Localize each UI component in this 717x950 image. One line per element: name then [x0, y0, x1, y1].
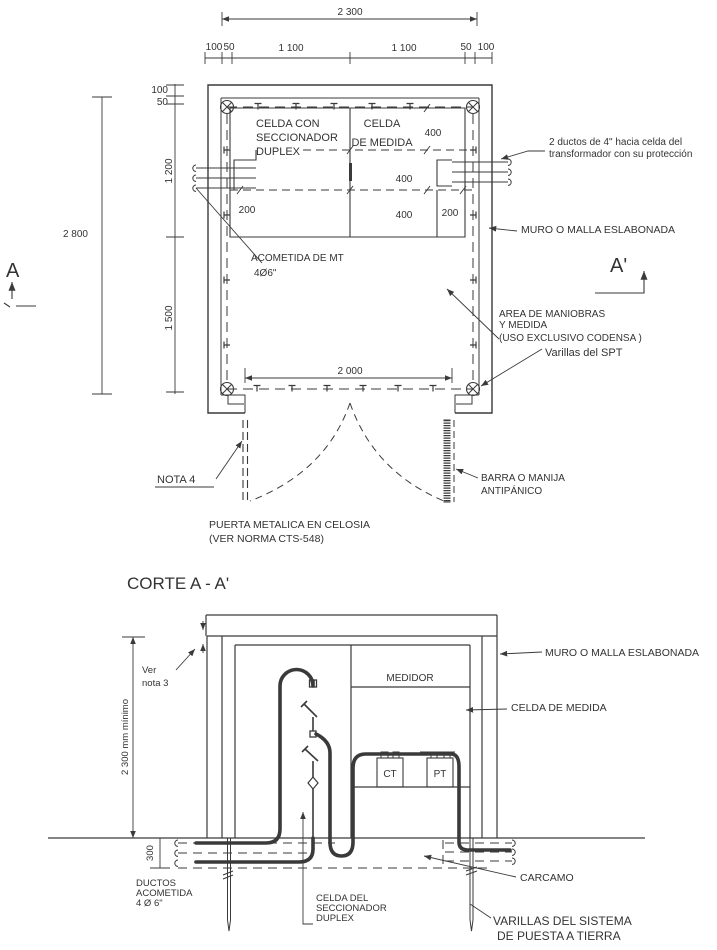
dim-1100-left: 1 100	[278, 43, 303, 54]
label-area-2: Y MEDIDA	[499, 320, 547, 331]
dim-100-left: 100	[206, 42, 223, 53]
section-marker-a-prime: A'	[610, 255, 627, 277]
label-celda-medida-1: CELDA	[364, 118, 401, 130]
section-view: CORTE A - A'	[48, 574, 699, 943]
section-marker-a-line	[4, 303, 36, 307]
label-celda-secc-3: DUPLEX	[316, 913, 355, 924]
label-ductos-2: transformador con su protección	[549, 149, 692, 160]
label-celda-seccionador-3: DUPLEX	[256, 146, 301, 158]
dim-300-label: 300	[145, 845, 156, 861]
label-barra-1: BARRA O MANIJA	[481, 473, 565, 484]
dim-100-right: 100	[478, 42, 495, 53]
leader-ductos	[501, 151, 545, 159]
label-muro-section: MURO O MALLA ESLABONADA	[545, 647, 699, 659]
label-muro-plan: MURO O MALLA ESLABONADA	[521, 224, 675, 236]
section-marker-a: A	[6, 260, 20, 282]
label-ver-nota-2: nota 3	[142, 678, 168, 689]
label-varillas-1: VARILLAS DEL SISTEMA	[493, 914, 632, 928]
leader-acometida	[196, 188, 262, 263]
label-pt: PT	[434, 769, 447, 780]
dim-left-1500: 1 500	[164, 305, 175, 330]
dim-left-50: 50	[157, 97, 169, 108]
dim-left-100: 100	[151, 85, 168, 96]
leader-barra	[456, 469, 478, 478]
dim-400-a: 400	[425, 128, 442, 139]
transformer-ducts-right	[452, 159, 511, 185]
leader-celda-medida	[466, 709, 507, 710]
leader-muro-section	[500, 652, 542, 654]
section-title: CORTE A - A'	[127, 574, 229, 593]
label-area-1: AREA DE MANIOBRAS	[499, 309, 605, 320]
label-ct: CT	[383, 769, 396, 780]
label-celda-medida-section: CELDA DE MEDIDA	[511, 702, 607, 714]
dim-200-right: 200	[442, 208, 459, 219]
drawing-sheet: 2 300 100 50 1 100 1 100 50 100 100 50 1…	[0, 0, 717, 950]
label-nota4: NOTA 4	[157, 474, 195, 486]
label-celda-seccionador-2: SECCIONADOR	[256, 132, 338, 144]
label-puerta-1: PUERTA METALICA EN CELOSIA	[209, 519, 370, 531]
dim-200-left: 200	[239, 205, 256, 216]
dim-2000-label: 2 000	[337, 366, 362, 377]
dim-1100-right: 1 100	[391, 43, 416, 54]
section-dimensions	[122, 621, 203, 868]
label-acometida-1: ACOMETIDA DE MT	[251, 253, 344, 264]
dim-left-1200: 1 200	[164, 158, 175, 183]
label-barra-2: ANTIPÁNICO	[481, 484, 542, 497]
leader-muro	[489, 228, 517, 231]
label-celda-medida-2: DE MEDIDA	[351, 137, 413, 149]
dim-50-left: 50	[223, 42, 235, 53]
label-area-3: (USO EXCLUSIVO CODENSA )	[499, 333, 642, 344]
dim-400-b: 400	[396, 174, 413, 185]
dim-400-c: 400	[396, 210, 413, 221]
label-carcamo: CARCAMO	[520, 872, 574, 884]
mt-ducts-left	[193, 165, 256, 191]
label-medidor: MEDIDOR	[386, 673, 433, 684]
dim-2300mm-label: 2 300 mm mínimo	[120, 699, 131, 775]
ground-rod-left	[223, 838, 233, 931]
dim-2300-label: 2 300	[337, 7, 362, 18]
switch-diamond	[308, 777, 318, 789]
leader-nota4	[216, 441, 242, 479]
seccionador-switch	[301, 680, 318, 838]
label-ductos-1: 2 ductos de 4" hacia celda del	[549, 137, 682, 148]
dim-50-right: 50	[460, 42, 472, 53]
door-assembly	[243, 403, 454, 502]
door-swing-arcs	[250, 403, 444, 501]
dim-extension-lines	[92, 12, 492, 394]
leader-varillas-spt	[481, 349, 542, 386]
label-acometida-2: 4Ø6"	[254, 268, 277, 279]
label-puerta-2: (VER NORMA CTS-548)	[209, 533, 324, 545]
dim-left-2800: 2 800	[63, 229, 88, 240]
label-varillas-2: DE PUESTA A TIERRA	[497, 929, 621, 943]
door-leaf-left	[243, 420, 248, 502]
cable-loop-in	[196, 670, 313, 843]
label-ductos-acometida-3: 4 Ø 6"	[136, 898, 163, 909]
plan-dimensions	[92, 12, 492, 394]
label-celda-seccionador-1: CELDA CON	[256, 118, 320, 130]
label-ver-nota-1: Ver	[142, 665, 156, 676]
substation-drawing: 2 300 100 50 1 100 1 100 50 100 100 50 1…	[0, 0, 717, 950]
mv-cables	[196, 670, 510, 862]
leader-ver-nota3	[176, 649, 195, 670]
switch-blades	[301, 701, 318, 838]
plan-view: 2 300 100 50 1 100 1 100 50 100 100 50 1…	[4, 7, 692, 545]
label-varillas-spt: Varillas del SPT	[545, 347, 623, 359]
